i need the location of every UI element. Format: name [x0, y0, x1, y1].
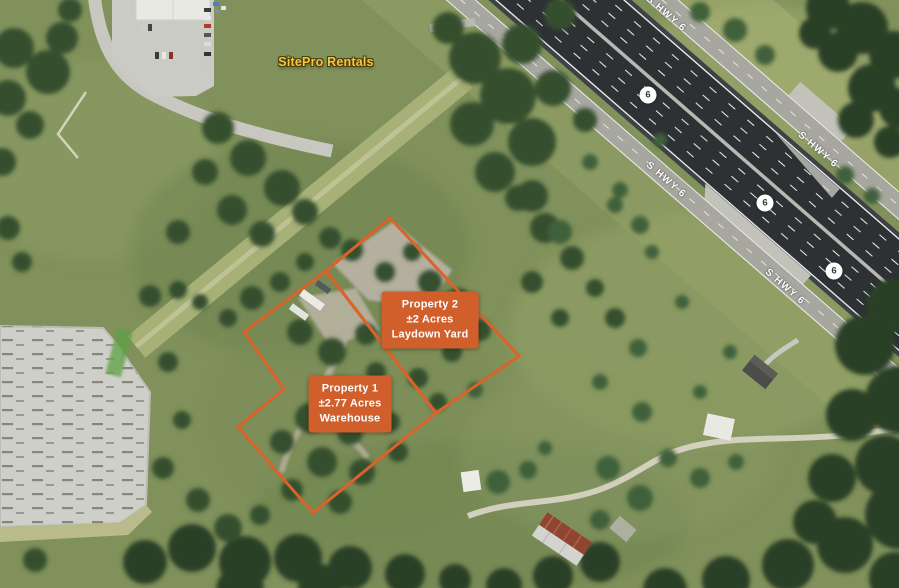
property-2-label: Property 2 ±2 Acres Laydown Yard [382, 292, 479, 349]
highway-shield-icon: 6 [757, 195, 774, 212]
property-1-name: Property 1 [319, 382, 382, 397]
property-2-name: Property 2 [392, 298, 469, 313]
business-label: SitePro Rentals [278, 55, 373, 69]
property-1-use: Warehouse [319, 412, 382, 427]
property-1-acres: ±2.77 Acres [319, 397, 382, 412]
property-2-acres: ±2 Acres [392, 313, 469, 328]
property-1-label: Property 1 ±2.77 Acres Warehouse [309, 376, 392, 433]
property-2-use: Laydown Yard [392, 328, 469, 343]
highway-shield-icon: 6 [640, 87, 657, 104]
highway-shield-icon: 6 [826, 263, 843, 280]
aerial-property-map: SitePro Rentals S HWY 6 S HWY 6 S HWY 6 … [0, 0, 899, 588]
